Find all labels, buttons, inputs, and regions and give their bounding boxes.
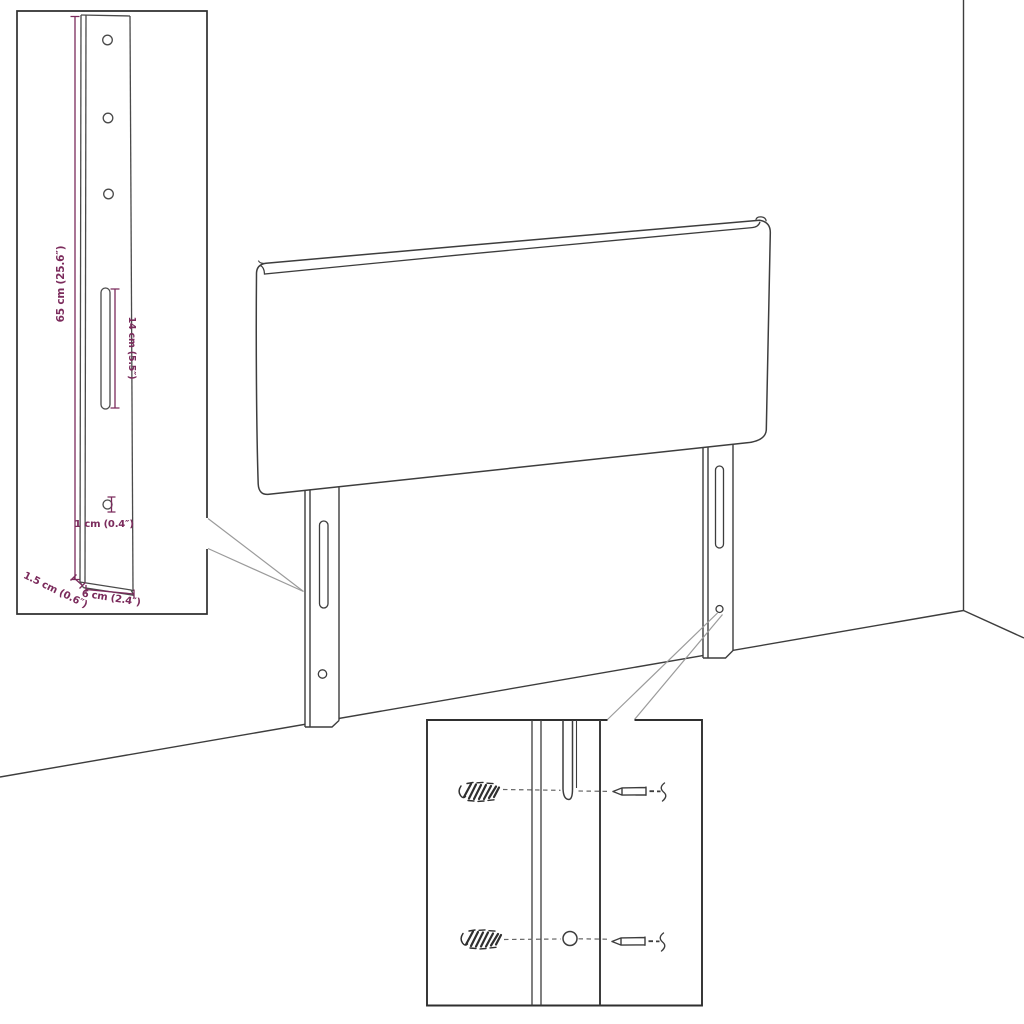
pilot-hole-circle (563, 932, 577, 946)
mounting-hardware-inset (427, 720, 702, 1006)
bracket-small-hole (103, 500, 112, 509)
floor-line-right (964, 611, 1024, 639)
headboard-panel (256, 217, 770, 495)
leader-line-left (608, 613, 718, 720)
bracket-hole-1 (103, 35, 113, 45)
panel-outline (256, 220, 770, 494)
headboard-leg-right (703, 445, 733, 659)
dimension-label-bracket-height: 65 cm (25.6″) (56, 246, 67, 323)
bracket-callout-lines (208, 519, 304, 592)
bracket-hole-2 (103, 113, 113, 123)
bracket-hole-3 (104, 189, 114, 199)
diagram-artwork (0, 0, 1024, 1024)
bracket-slot (101, 288, 110, 409)
headboard-leg-left (305, 488, 339, 728)
leg-left-slot (320, 521, 329, 608)
leg-left-screw-hole (318, 670, 326, 678)
dimension-label-hole-diameter: 1 cm (0.4″) (74, 520, 133, 530)
panel-top-left-corner-curl (258, 261, 265, 264)
dimension-label-slot-length: 14 cm (5.5″) (126, 317, 136, 380)
leg-right-slot (716, 466, 724, 548)
leader-line-right (635, 615, 723, 720)
product-dimension-diagram: 65 cm (25.6″) 14 cm (5.5″) 1 cm (0.4″) 1… (0, 0, 1024, 1024)
leg-right-screw-hole (716, 606, 723, 613)
